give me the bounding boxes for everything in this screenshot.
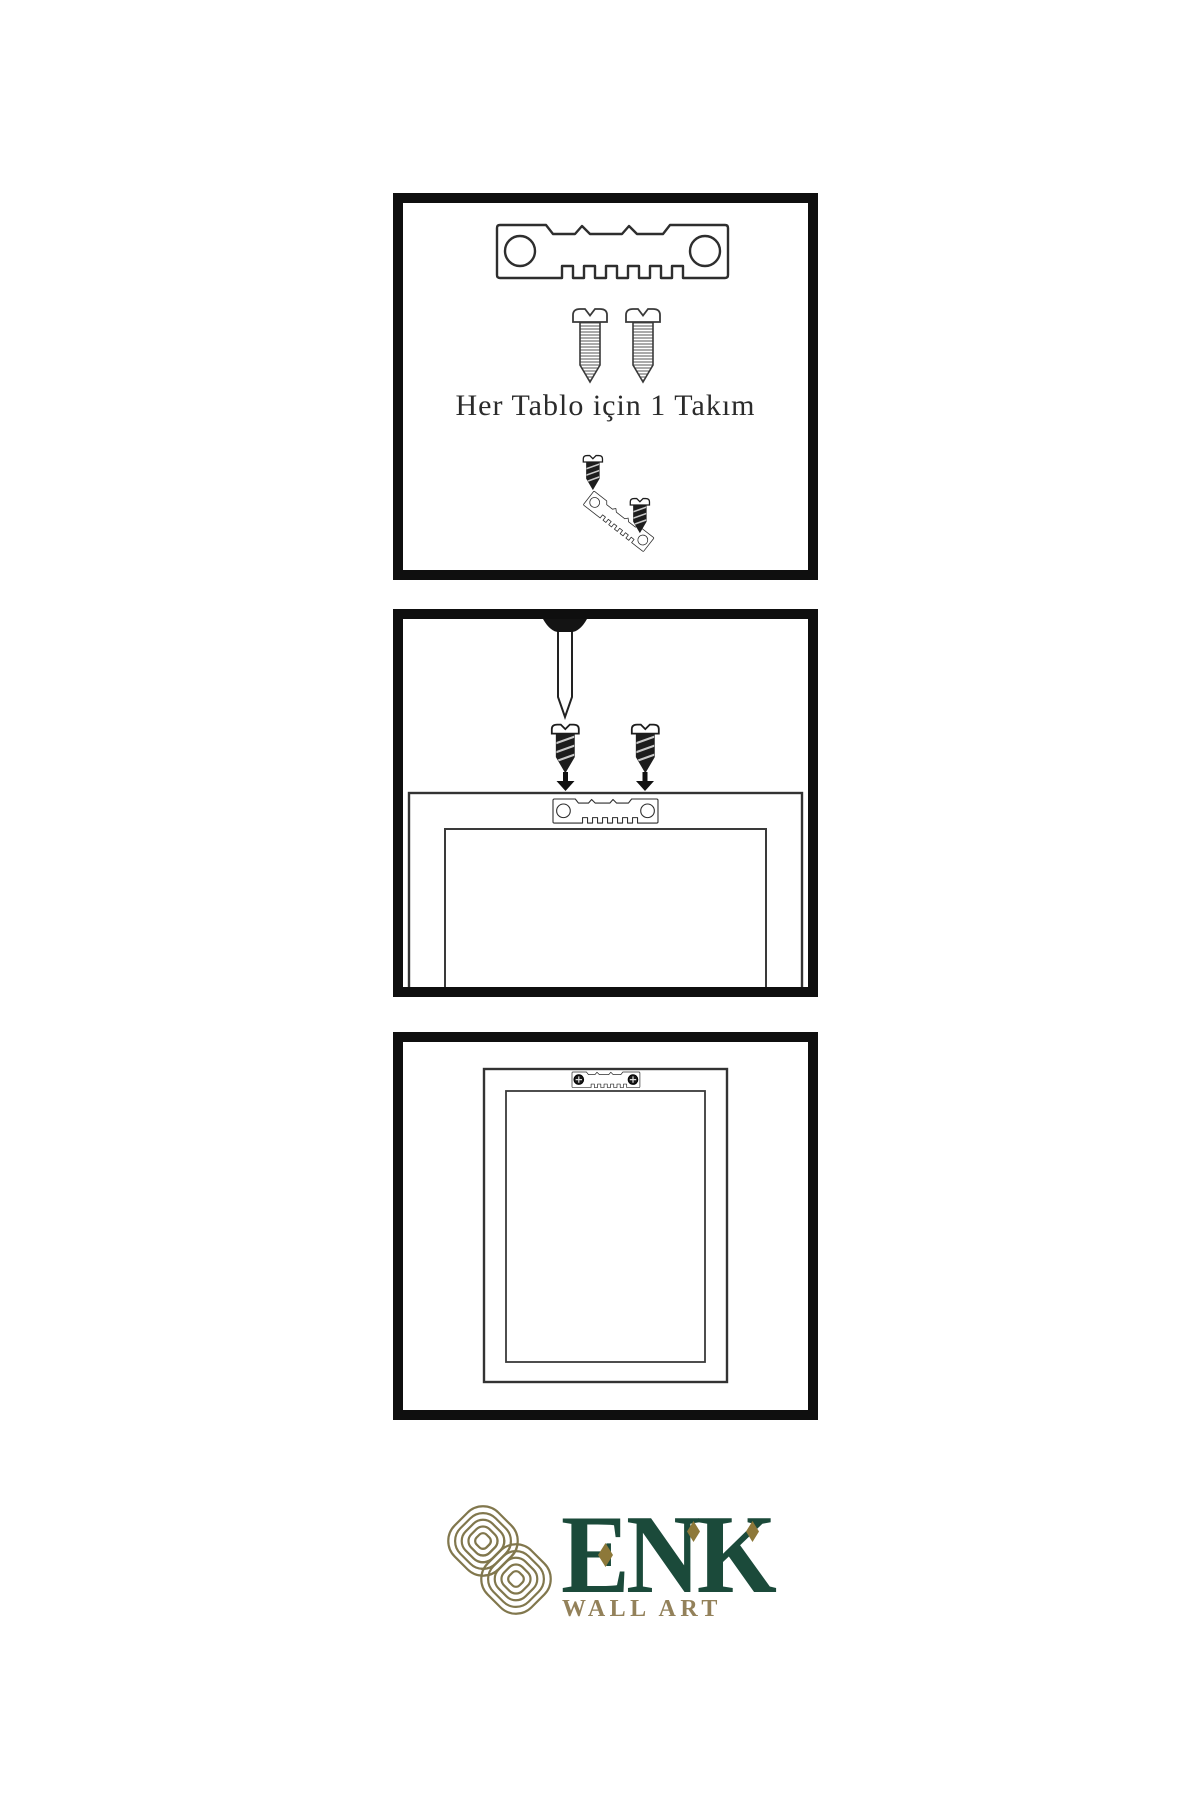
panel-hardware-kit: Her Tablo için 1 Takım <box>393 193 818 580</box>
panel-wall-mounting <box>393 609 818 997</box>
sawtooth-hanger-with-screws-icon <box>572 1072 640 1088</box>
screw-icon <box>626 309 660 382</box>
frame-inner-edge <box>506 1091 705 1362</box>
frame-outer-edge <box>409 793 802 987</box>
panel-mounted-frame <box>393 1032 818 1420</box>
sawtooth-hanger-icon <box>553 799 658 823</box>
kit-caption: Her Tablo için 1 Takım <box>403 389 808 423</box>
sawtooth-hanger-icon <box>497 225 728 278</box>
screw-into-hanger-icon <box>583 456 654 552</box>
brand-tagline: WALL ART <box>562 1597 722 1621</box>
screw-icon <box>573 309 607 382</box>
down-arrow-icon <box>636 772 654 791</box>
down-arrow-icon <box>557 772 575 791</box>
brand-name: ENK <box>561 1499 773 1611</box>
wall-mounting-illustration <box>403 619 808 987</box>
knot-logo-icon <box>437 1493 562 1627</box>
frame-outer-edge <box>484 1069 727 1382</box>
hardware-kit-illustration <box>403 203 808 570</box>
wall-nail-icon <box>543 619 587 717</box>
screw-icon <box>632 725 659 773</box>
mounted-frame-illustration <box>403 1042 808 1410</box>
page: Her Tablo için 1 Takım <box>0 0 1200 1800</box>
frame-inner-edge <box>445 829 766 987</box>
screw-icon <box>552 725 579 773</box>
